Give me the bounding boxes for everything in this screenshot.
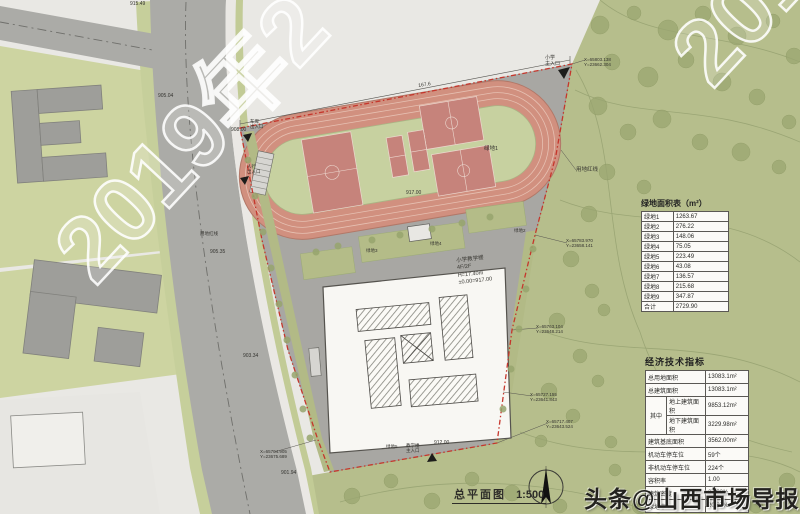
tree-icon	[589, 97, 607, 115]
tree-icon	[592, 375, 604, 387]
table-row: 绿地5223.49	[642, 252, 729, 262]
table-row: 绿地8215.68	[642, 282, 729, 292]
tree-icon	[284, 337, 291, 344]
tree-icon	[766, 14, 780, 28]
table-row: 机动车停车位59个	[646, 448, 749, 461]
tree-icon	[465, 472, 479, 486]
tree-icon	[732, 143, 750, 161]
tree-icon	[397, 232, 404, 239]
table-row: 绿地9347.87	[642, 292, 729, 302]
tree-icon	[530, 246, 537, 253]
tree-icon	[638, 67, 658, 87]
tree-icon	[585, 284, 599, 298]
tree-icon	[508, 366, 515, 373]
table-row: 合计2729.90	[642, 302, 729, 312]
tree-icon	[772, 160, 786, 174]
stairs	[309, 348, 321, 377]
tree-icon	[728, 27, 746, 45]
table-row: 总用地面积13083.1m²	[646, 371, 749, 384]
tree-icon	[307, 435, 314, 442]
tree-icon	[678, 52, 694, 68]
tree-icon	[429, 226, 436, 233]
tree-icon	[566, 409, 580, 423]
tree-icon	[535, 435, 547, 447]
table-row: 绿地11263.67	[642, 212, 729, 222]
table-row: 绿地7136.57	[642, 272, 729, 282]
tree-icon	[598, 304, 610, 316]
tree-icon	[786, 48, 800, 64]
green-area-table: 绿地面积表（m²） 绿地11263.67绿地2276.22绿地3148.06绿地…	[641, 198, 731, 312]
tree-icon	[563, 251, 579, 267]
green-table-title: 绿地面积表（m²）	[641, 198, 731, 209]
tree-icon	[637, 180, 651, 194]
tree-icon	[692, 134, 708, 150]
tree-icon	[384, 474, 398, 488]
site-plan-page: 915.49905.04908.00905.35903.34901.94X=65…	[0, 0, 800, 514]
tree-icon	[313, 249, 320, 256]
tree-icon	[695, 6, 711, 22]
table-row: 绿地643.08	[642, 262, 729, 272]
table-row: 绿地3148.06	[642, 232, 729, 242]
tree-icon	[424, 493, 440, 509]
teaching-building	[323, 268, 511, 453]
tree-icon	[487, 214, 494, 221]
tree-icon	[591, 16, 609, 34]
tree-icon	[500, 406, 507, 413]
tree-icon	[268, 265, 275, 272]
table-row: 绿地2276.22	[642, 222, 729, 232]
tree-icon	[605, 436, 617, 448]
tree-icon	[549, 313, 565, 329]
tree-icon	[276, 301, 283, 308]
building-label: 小学教学楼 4F/2F H=17.40m ±0.00=917.00	[456, 254, 493, 287]
tree-icon	[459, 220, 466, 227]
table-row: 总建筑面积13083.1m²	[646, 384, 749, 397]
tree-icon	[749, 89, 765, 105]
tree-icon	[541, 383, 557, 399]
drawing-scale: 1:500	[516, 489, 544, 501]
table-row: 非机动车停车位224个	[646, 461, 749, 474]
table-row: 绿地475.05	[642, 242, 729, 252]
tree-icon	[609, 464, 621, 476]
tree-icon	[523, 286, 530, 293]
drawing-title-text: 总平面图	[454, 489, 506, 501]
econ-table-title: 经济技术指标	[645, 355, 751, 368]
green-table-body: 绿地11263.67绿地2276.22绿地3148.06绿地475.05绿地52…	[642, 212, 729, 312]
tree-icon	[292, 372, 299, 379]
tree-icon	[260, 229, 267, 236]
tree-icon	[713, 73, 731, 91]
tree-icon	[604, 54, 620, 70]
tree-icon	[620, 124, 636, 140]
tree-icon	[581, 206, 597, 222]
tree-icon	[369, 237, 376, 244]
table-row: 建筑基底面积3562.00m²	[646, 435, 749, 448]
tree-icon	[300, 406, 307, 413]
tree-icon	[516, 326, 523, 333]
building-footprint-white	[11, 412, 86, 468]
table-row: 其中地上建筑面积9853.12m²	[646, 397, 749, 416]
tree-icon	[344, 488, 360, 504]
tree-icon	[627, 6, 641, 20]
tree-icon	[335, 243, 342, 250]
tree-icon	[599, 164, 615, 180]
branding-watermark: 头条@山西市场导报	[584, 480, 799, 514]
tree-icon	[782, 115, 796, 129]
tree-icon	[653, 110, 671, 128]
drawing-title: 总平面图 1:500	[452, 486, 546, 504]
tree-icon	[658, 20, 678, 40]
tree-icon	[252, 193, 259, 200]
tree-icon	[573, 349, 587, 363]
tree-icon	[245, 157, 252, 164]
